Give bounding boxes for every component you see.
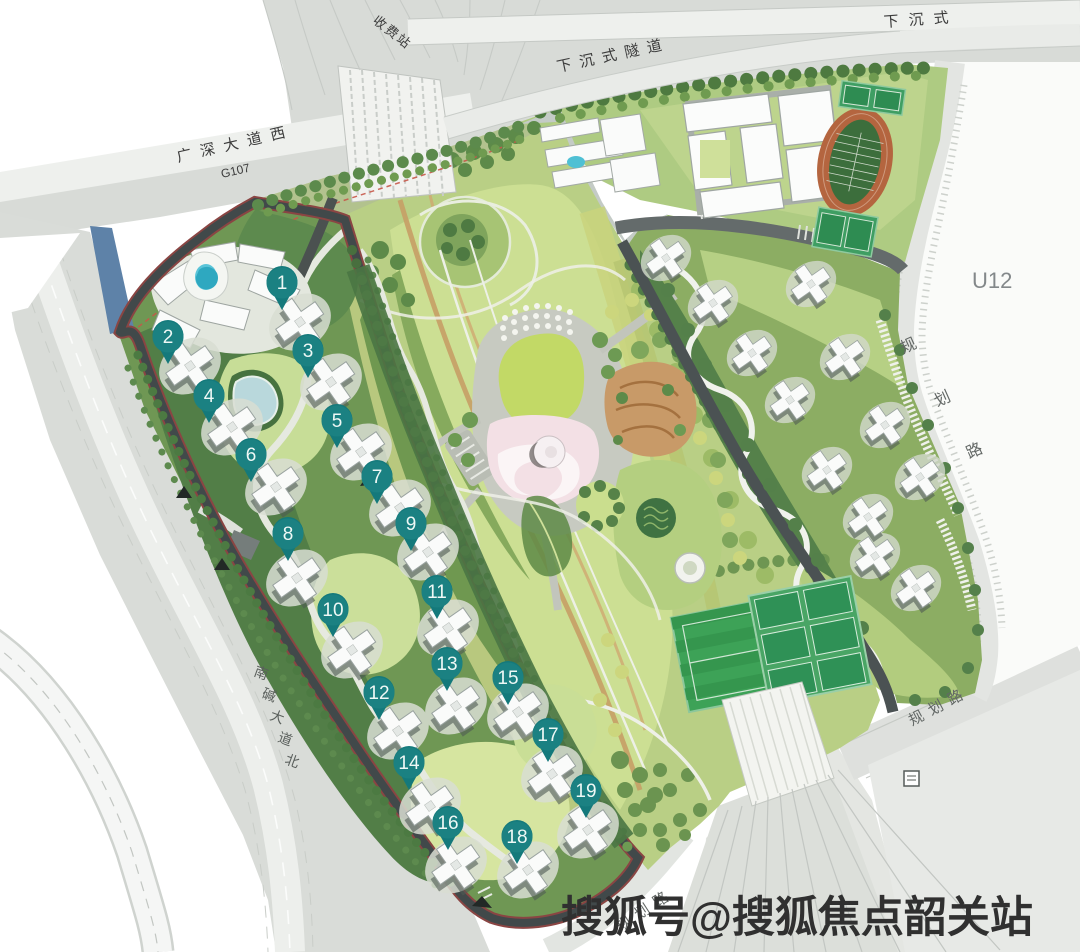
- svg-text:15: 15: [497, 668, 518, 689]
- svg-text:16: 16: [437, 813, 458, 834]
- svg-text:19: 19: [575, 781, 596, 802]
- svg-text:4: 4: [204, 386, 215, 407]
- svg-text:10: 10: [322, 600, 343, 621]
- svg-text:18: 18: [506, 827, 527, 848]
- svg-text:8: 8: [283, 524, 294, 545]
- svg-text:17: 17: [537, 725, 558, 746]
- svg-text:6: 6: [246, 445, 257, 466]
- svg-text:U12: U12: [972, 268, 1012, 293]
- svg-text:13: 13: [436, 654, 457, 675]
- svg-text:11: 11: [427, 582, 447, 603]
- svg-text:12: 12: [368, 683, 389, 704]
- svg-text:5: 5: [332, 411, 343, 432]
- svg-text:7: 7: [372, 467, 383, 488]
- svg-text:1: 1: [277, 273, 288, 294]
- svg-text:3: 3: [303, 341, 314, 362]
- svg-text:搜狐号@搜狐焦点韶关站: 搜狐号@搜狐焦点韶关站: [561, 894, 1033, 942]
- svg-text:14: 14: [398, 753, 420, 774]
- svg-text:2: 2: [163, 327, 174, 348]
- svg-text:9: 9: [406, 514, 417, 535]
